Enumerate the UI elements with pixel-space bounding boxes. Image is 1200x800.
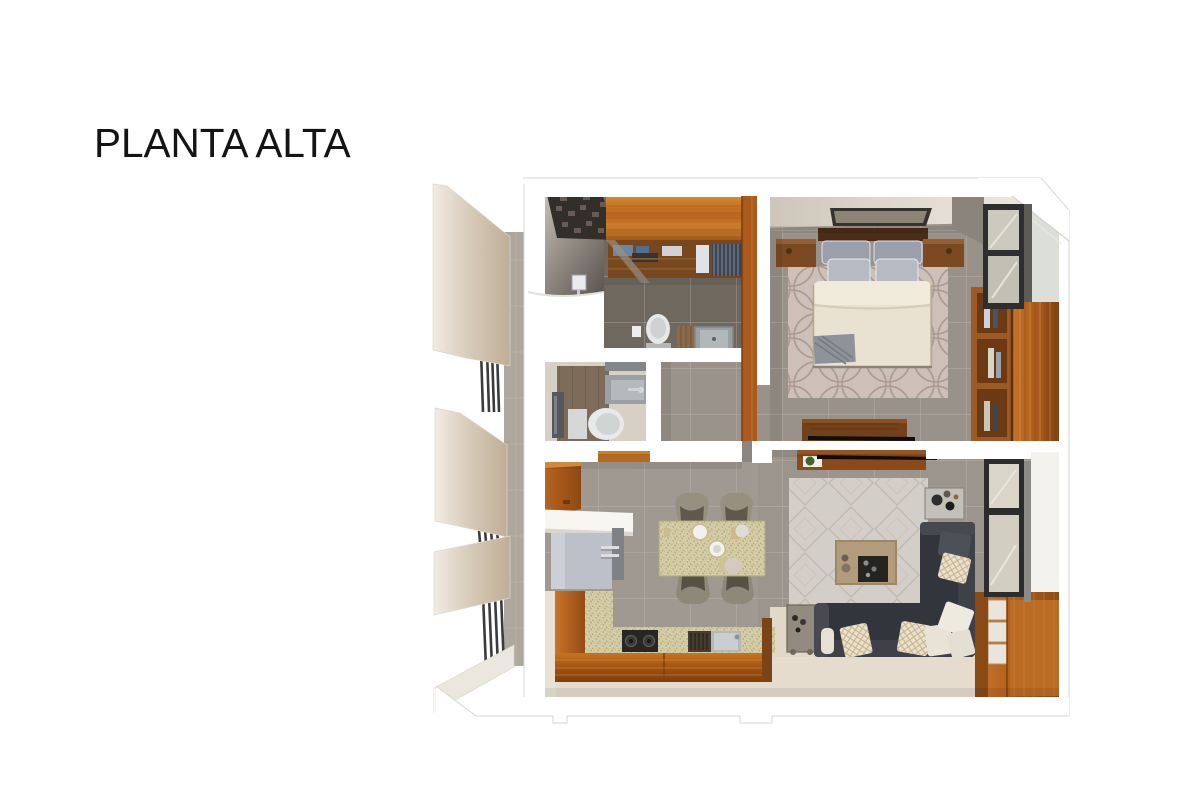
svg-text:PLANTA ALTA: PLANTA ALTA [94,120,351,166]
